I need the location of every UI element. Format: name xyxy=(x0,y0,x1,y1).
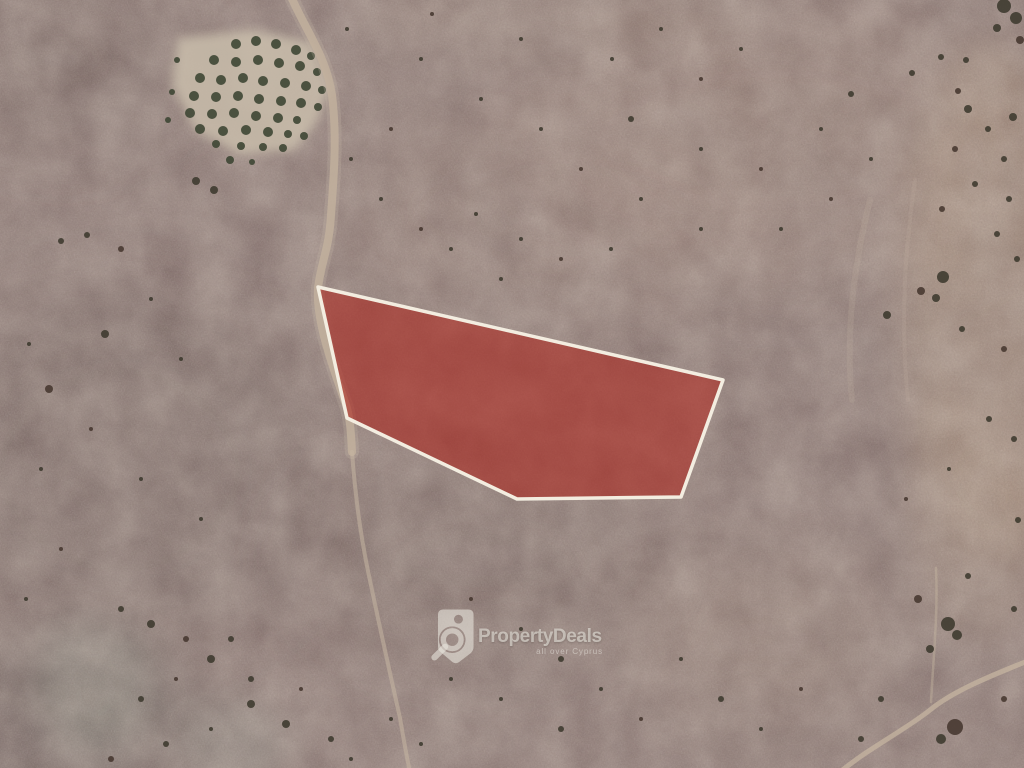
bush-icon xyxy=(858,736,864,742)
bush-icon xyxy=(1010,12,1022,24)
bush-icon xyxy=(349,157,353,161)
bush-icon xyxy=(45,385,53,393)
bush-icon xyxy=(199,517,203,521)
bush-icon xyxy=(419,227,423,231)
bush-icon xyxy=(558,726,564,732)
tree-icon xyxy=(276,96,286,106)
tree-icon xyxy=(165,117,171,123)
tree-icon xyxy=(301,81,311,91)
bush-icon xyxy=(609,247,613,251)
bush-icon xyxy=(869,157,873,161)
bush-icon xyxy=(89,427,93,431)
bush-icon xyxy=(248,676,254,682)
tree-icon xyxy=(238,73,248,83)
tree-icon xyxy=(314,103,322,111)
bush-icon xyxy=(1016,36,1024,44)
bush-icon xyxy=(937,271,949,283)
bush-icon xyxy=(1011,606,1017,612)
tree-icon xyxy=(284,130,292,138)
tree-icon xyxy=(271,39,281,49)
bush-icon xyxy=(389,717,393,721)
bush-icon xyxy=(904,497,908,501)
tree-icon xyxy=(174,57,180,63)
tree-icon xyxy=(218,126,228,136)
tree-icon xyxy=(296,98,306,108)
tree-icon xyxy=(185,108,195,118)
tree-icon xyxy=(263,127,273,137)
bush-icon xyxy=(27,342,31,346)
bush-icon xyxy=(558,656,564,662)
bush-icon xyxy=(207,655,215,663)
tree-icon xyxy=(273,113,283,123)
bush-icon xyxy=(936,734,946,744)
tree-icon xyxy=(229,108,239,118)
bush-icon xyxy=(952,146,958,152)
bush-icon xyxy=(1014,256,1020,262)
tree-icon xyxy=(291,45,301,55)
bush-icon xyxy=(559,257,563,261)
bush-icon xyxy=(1001,156,1007,162)
bush-icon xyxy=(539,127,543,131)
tree-icon xyxy=(237,142,245,150)
bush-icon xyxy=(183,636,189,642)
bush-icon xyxy=(799,687,803,691)
tree-icon xyxy=(212,140,220,148)
bush-icon xyxy=(449,247,453,251)
bush-icon xyxy=(474,212,478,216)
bush-icon xyxy=(926,645,934,653)
bush-icon xyxy=(938,54,944,60)
tree-icon xyxy=(279,144,287,152)
bush-icon xyxy=(499,697,503,701)
bush-icon xyxy=(59,547,63,551)
tree-icon xyxy=(295,61,305,71)
bush-icon xyxy=(519,37,523,41)
bush-icon xyxy=(118,246,124,252)
bush-icon xyxy=(679,657,683,661)
tree-icon xyxy=(189,91,199,101)
tree-icon xyxy=(254,94,264,104)
bush-icon xyxy=(1009,113,1017,121)
bush-icon xyxy=(349,757,353,761)
bush-icon xyxy=(1001,696,1007,702)
bush-icon xyxy=(964,105,972,113)
bush-icon xyxy=(959,326,965,332)
bush-icon xyxy=(192,177,200,185)
bush-icon xyxy=(599,687,603,691)
bush-icon xyxy=(24,597,28,601)
bush-icon xyxy=(914,595,922,603)
tree-icon xyxy=(293,116,301,124)
tree-icon xyxy=(169,89,175,95)
bush-icon xyxy=(163,741,169,747)
bush-icon xyxy=(883,311,891,319)
bush-icon xyxy=(939,206,945,212)
bush-icon xyxy=(699,77,703,81)
tree-icon xyxy=(211,92,221,102)
bush-icon xyxy=(1015,517,1021,523)
bush-icon xyxy=(699,147,703,151)
bush-icon xyxy=(328,736,334,742)
bush-icon xyxy=(917,287,925,295)
bush-icon xyxy=(282,720,290,728)
bush-icon xyxy=(848,91,854,97)
bush-icon xyxy=(1011,436,1017,442)
bush-icon xyxy=(449,677,453,681)
satellite-map-view: PropertyDeals all over Cyprus xyxy=(0,0,1024,768)
bush-icon xyxy=(718,696,724,702)
bush-icon xyxy=(699,227,703,231)
tree-icon xyxy=(233,91,243,101)
tree-icon xyxy=(216,75,226,85)
tree-icon xyxy=(231,57,241,67)
bush-icon xyxy=(994,231,1000,237)
tree-icon xyxy=(226,156,234,164)
bush-icon xyxy=(963,57,969,63)
bush-icon xyxy=(101,330,109,338)
bush-icon xyxy=(628,116,634,122)
bush-icon xyxy=(739,47,743,51)
tree-icon xyxy=(209,55,219,65)
bush-icon xyxy=(138,696,144,702)
bush-icon xyxy=(389,127,393,131)
bush-icon xyxy=(941,617,955,631)
map-canvas-svg xyxy=(0,0,1024,768)
bush-icon xyxy=(519,237,523,241)
tree-icon xyxy=(300,132,308,140)
bush-icon xyxy=(499,277,503,281)
bush-icon xyxy=(519,627,523,631)
bush-icon xyxy=(139,477,143,481)
bush-icon xyxy=(149,297,153,301)
bush-icon xyxy=(947,719,963,735)
tree-icon xyxy=(280,78,290,88)
bush-icon xyxy=(228,636,234,642)
bush-icon xyxy=(932,294,940,302)
bush-icon xyxy=(147,620,155,628)
bush-icon xyxy=(209,727,213,731)
bush-icon xyxy=(829,197,833,201)
tree-icon xyxy=(231,39,241,49)
tree-icon xyxy=(195,73,205,83)
tree-icon xyxy=(253,55,263,65)
bush-icon xyxy=(247,700,255,708)
tree-icon xyxy=(251,36,261,46)
bush-icon xyxy=(379,197,383,201)
bush-icon xyxy=(965,573,971,579)
bush-icon xyxy=(639,717,643,721)
bush-icon xyxy=(345,27,349,31)
bush-icon xyxy=(947,467,951,471)
bush-icon xyxy=(819,127,823,131)
bush-icon xyxy=(779,227,783,231)
bush-icon xyxy=(469,597,473,601)
bush-icon xyxy=(1001,346,1007,352)
bush-icon xyxy=(955,88,961,94)
tree-icon xyxy=(259,143,267,151)
bush-icon xyxy=(174,677,178,681)
bush-icon xyxy=(108,756,114,762)
tree-icon xyxy=(258,76,268,86)
tree-icon xyxy=(251,111,261,121)
bush-icon xyxy=(986,416,992,422)
bush-icon xyxy=(610,57,614,61)
bush-icon xyxy=(118,606,124,612)
bush-icon xyxy=(909,70,915,76)
tree-icon xyxy=(207,109,217,119)
bush-icon xyxy=(39,467,43,471)
bush-icon xyxy=(878,696,884,702)
bush-icon xyxy=(210,186,218,194)
bush-icon xyxy=(58,238,64,244)
bush-icon xyxy=(759,167,763,171)
bush-icon xyxy=(952,630,962,640)
bush-icon xyxy=(972,181,978,187)
bush-icon xyxy=(179,357,183,361)
bush-icon xyxy=(993,24,1001,32)
tree-icon xyxy=(274,58,284,68)
bush-icon xyxy=(419,57,423,61)
bush-icon xyxy=(84,232,90,238)
bush-icon xyxy=(639,197,643,201)
tree-icon xyxy=(195,124,205,134)
bush-icon xyxy=(479,97,483,101)
bush-icon xyxy=(579,167,583,171)
bush-icon xyxy=(1006,196,1012,202)
bush-icon xyxy=(419,742,423,746)
bush-icon xyxy=(985,126,991,132)
bush-icon xyxy=(659,27,663,31)
bush-icon xyxy=(299,687,303,691)
bush-icon xyxy=(759,727,763,731)
bush-icon xyxy=(430,12,434,16)
tree-icon xyxy=(249,159,255,165)
tree-icon xyxy=(241,125,251,135)
